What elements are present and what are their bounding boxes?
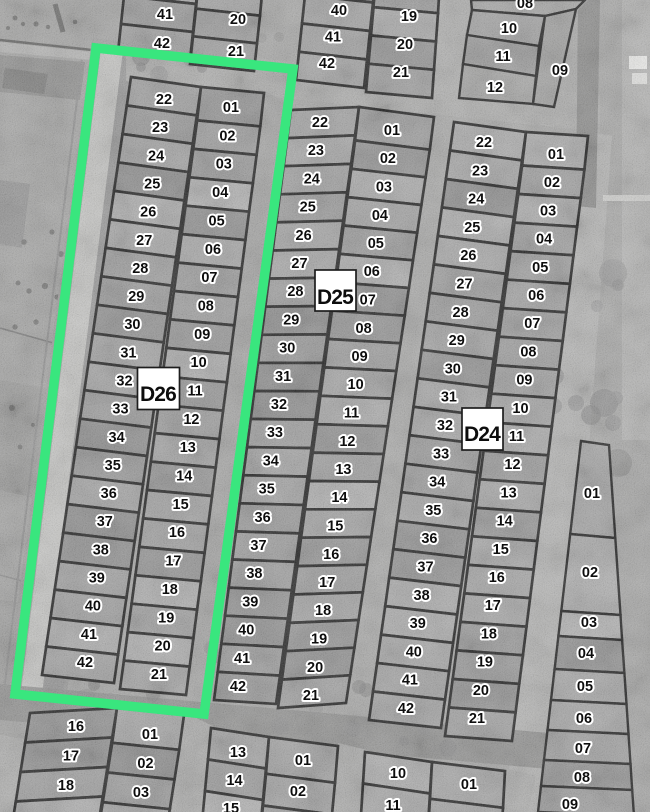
svg-text:09: 09 xyxy=(516,373,532,389)
svg-text:40: 40 xyxy=(85,599,101,615)
svg-text:13: 13 xyxy=(501,485,517,501)
svg-text:D26: D26 xyxy=(140,383,177,406)
svg-text:38: 38 xyxy=(414,588,430,604)
svg-text:40: 40 xyxy=(238,623,254,639)
svg-text:37: 37 xyxy=(97,514,113,530)
svg-text:39: 39 xyxy=(242,594,258,610)
svg-text:25: 25 xyxy=(464,220,480,236)
svg-text:05: 05 xyxy=(209,213,225,229)
svg-text:37: 37 xyxy=(250,538,266,554)
svg-text:15: 15 xyxy=(493,542,509,558)
svg-text:41: 41 xyxy=(402,673,418,689)
svg-text:13: 13 xyxy=(335,462,351,478)
svg-text:06: 06 xyxy=(528,288,544,304)
svg-text:28: 28 xyxy=(132,261,148,277)
svg-text:42: 42 xyxy=(154,36,170,52)
svg-text:15: 15 xyxy=(223,801,239,812)
svg-text:20: 20 xyxy=(397,37,413,53)
svg-text:06: 06 xyxy=(205,242,221,258)
svg-text:18: 18 xyxy=(315,603,331,619)
svg-text:31: 31 xyxy=(120,345,136,361)
svg-text:12: 12 xyxy=(183,412,199,428)
svg-text:21: 21 xyxy=(303,688,319,704)
svg-text:34: 34 xyxy=(109,430,125,446)
svg-text:22: 22 xyxy=(476,135,492,151)
svg-text:33: 33 xyxy=(433,446,449,462)
svg-text:33: 33 xyxy=(112,402,128,418)
svg-text:02: 02 xyxy=(544,175,560,191)
svg-text:17: 17 xyxy=(485,598,501,614)
svg-text:01: 01 xyxy=(584,486,600,502)
svg-text:11: 11 xyxy=(509,429,524,445)
svg-text:42: 42 xyxy=(77,655,93,671)
svg-text:04: 04 xyxy=(372,208,388,224)
svg-text:26: 26 xyxy=(460,248,476,264)
svg-text:31: 31 xyxy=(275,369,291,385)
svg-text:02: 02 xyxy=(219,128,235,144)
svg-text:05: 05 xyxy=(368,236,384,252)
svg-text:03: 03 xyxy=(376,180,392,196)
svg-text:17: 17 xyxy=(63,749,79,765)
svg-text:05: 05 xyxy=(577,679,593,695)
svg-text:24: 24 xyxy=(148,148,164,164)
svg-text:10: 10 xyxy=(191,355,207,371)
svg-text:04: 04 xyxy=(536,232,552,248)
svg-text:25: 25 xyxy=(144,176,160,192)
svg-text:15: 15 xyxy=(173,497,189,513)
svg-text:11: 11 xyxy=(344,406,359,422)
svg-text:07: 07 xyxy=(524,316,540,332)
svg-text:02: 02 xyxy=(582,565,598,581)
svg-text:14: 14 xyxy=(176,469,192,485)
svg-text:03: 03 xyxy=(540,203,556,219)
svg-text:04: 04 xyxy=(212,185,228,201)
svg-text:19: 19 xyxy=(158,610,174,626)
svg-text:20: 20 xyxy=(473,683,489,699)
svg-text:18: 18 xyxy=(162,582,178,598)
svg-text:15: 15 xyxy=(327,519,343,535)
svg-text:16: 16 xyxy=(169,525,185,541)
svg-text:35: 35 xyxy=(425,503,441,519)
svg-text:14: 14 xyxy=(226,773,242,789)
svg-text:08: 08 xyxy=(356,321,372,337)
svg-text:32: 32 xyxy=(437,418,453,434)
svg-text:17: 17 xyxy=(319,575,335,591)
svg-text:22: 22 xyxy=(312,115,328,131)
svg-text:09: 09 xyxy=(562,797,578,812)
svg-text:35: 35 xyxy=(105,458,121,474)
svg-text:06: 06 xyxy=(364,264,380,280)
svg-text:42: 42 xyxy=(398,701,414,717)
svg-text:07: 07 xyxy=(201,270,217,286)
svg-text:11: 11 xyxy=(385,798,400,812)
svg-text:38: 38 xyxy=(246,566,262,582)
svg-text:21: 21 xyxy=(393,65,409,81)
svg-text:39: 39 xyxy=(89,571,105,587)
svg-text:19: 19 xyxy=(477,655,493,671)
svg-text:32: 32 xyxy=(116,374,132,390)
svg-text:09: 09 xyxy=(194,327,210,343)
svg-text:D25: D25 xyxy=(317,286,354,309)
svg-text:18: 18 xyxy=(481,626,497,642)
svg-text:30: 30 xyxy=(124,317,140,333)
svg-text:14: 14 xyxy=(331,490,347,506)
svg-text:01: 01 xyxy=(223,100,239,116)
svg-text:37: 37 xyxy=(417,560,433,576)
svg-text:36: 36 xyxy=(255,510,271,526)
svg-text:13: 13 xyxy=(230,745,246,761)
svg-text:39: 39 xyxy=(410,616,426,632)
svg-text:36: 36 xyxy=(101,486,117,502)
svg-text:10: 10 xyxy=(348,377,364,393)
svg-text:24: 24 xyxy=(468,192,484,208)
svg-text:28: 28 xyxy=(453,305,469,321)
svg-text:06: 06 xyxy=(576,711,592,727)
svg-text:32: 32 xyxy=(271,397,287,413)
svg-text:16: 16 xyxy=(323,547,339,563)
svg-text:02: 02 xyxy=(380,151,396,167)
svg-text:14: 14 xyxy=(497,514,513,530)
svg-text:30: 30 xyxy=(445,361,461,377)
svg-text:28: 28 xyxy=(287,284,303,300)
svg-text:40: 40 xyxy=(406,644,422,660)
svg-text:23: 23 xyxy=(308,143,324,159)
svg-text:03: 03 xyxy=(216,157,232,173)
svg-text:16: 16 xyxy=(489,570,505,586)
svg-text:16: 16 xyxy=(68,719,84,735)
svg-text:35: 35 xyxy=(259,482,275,498)
svg-text:09: 09 xyxy=(552,63,568,79)
svg-text:26: 26 xyxy=(296,228,312,244)
svg-text:01: 01 xyxy=(295,753,311,769)
svg-text:09: 09 xyxy=(352,349,368,365)
svg-text:08: 08 xyxy=(517,0,533,12)
svg-text:29: 29 xyxy=(449,333,465,349)
svg-text:07: 07 xyxy=(360,293,376,309)
svg-text:34: 34 xyxy=(263,453,279,469)
svg-text:42: 42 xyxy=(230,679,246,695)
svg-text:23: 23 xyxy=(152,120,168,136)
svg-text:42: 42 xyxy=(319,56,335,72)
svg-text:07: 07 xyxy=(575,741,591,757)
svg-text:18: 18 xyxy=(58,778,74,794)
svg-text:24: 24 xyxy=(304,171,320,187)
svg-text:08: 08 xyxy=(520,344,536,360)
svg-text:04: 04 xyxy=(578,646,594,662)
svg-text:38: 38 xyxy=(93,542,109,558)
svg-text:19: 19 xyxy=(311,632,327,648)
svg-text:10: 10 xyxy=(390,766,406,782)
svg-text:27: 27 xyxy=(291,256,307,272)
svg-text:30: 30 xyxy=(279,341,295,357)
svg-text:20: 20 xyxy=(155,639,171,655)
svg-text:03: 03 xyxy=(133,785,149,801)
svg-text:13: 13 xyxy=(180,440,196,456)
svg-text:01: 01 xyxy=(384,123,400,139)
svg-text:34: 34 xyxy=(429,475,445,491)
svg-text:05: 05 xyxy=(532,260,548,276)
svg-text:02: 02 xyxy=(137,756,153,772)
svg-text:D24: D24 xyxy=(464,423,501,446)
svg-text:01: 01 xyxy=(142,727,158,743)
svg-text:10: 10 xyxy=(512,401,528,417)
svg-text:08: 08 xyxy=(198,299,214,315)
svg-text:11: 11 xyxy=(495,49,510,65)
svg-text:41: 41 xyxy=(325,30,341,46)
svg-text:23: 23 xyxy=(472,163,488,179)
svg-text:20: 20 xyxy=(307,660,323,676)
svg-text:27: 27 xyxy=(136,233,152,249)
svg-text:41: 41 xyxy=(81,627,97,643)
svg-text:01: 01 xyxy=(548,147,564,163)
svg-text:11: 11 xyxy=(187,384,202,400)
svg-text:41: 41 xyxy=(234,651,250,667)
svg-text:10: 10 xyxy=(501,21,517,37)
svg-text:33: 33 xyxy=(267,425,283,441)
svg-text:12: 12 xyxy=(504,457,520,473)
svg-text:02: 02 xyxy=(290,784,306,800)
svg-text:40: 40 xyxy=(331,3,347,19)
svg-text:03: 03 xyxy=(581,615,597,631)
svg-text:26: 26 xyxy=(140,205,156,221)
svg-text:41: 41 xyxy=(157,7,173,23)
svg-text:27: 27 xyxy=(456,277,472,293)
svg-text:21: 21 xyxy=(469,711,485,727)
svg-text:12: 12 xyxy=(487,80,503,96)
svg-text:17: 17 xyxy=(165,554,181,570)
svg-text:21: 21 xyxy=(151,667,167,683)
svg-text:36: 36 xyxy=(421,531,437,547)
svg-text:01: 01 xyxy=(461,777,477,793)
svg-text:22: 22 xyxy=(156,92,172,108)
svg-text:08: 08 xyxy=(574,770,590,786)
svg-text:20: 20 xyxy=(230,12,246,28)
svg-text:31: 31 xyxy=(441,390,457,406)
svg-text:19: 19 xyxy=(401,9,417,25)
svg-text:29: 29 xyxy=(283,312,299,328)
svg-text:12: 12 xyxy=(339,434,355,450)
svg-text:25: 25 xyxy=(300,200,316,216)
svg-text:29: 29 xyxy=(128,289,144,305)
